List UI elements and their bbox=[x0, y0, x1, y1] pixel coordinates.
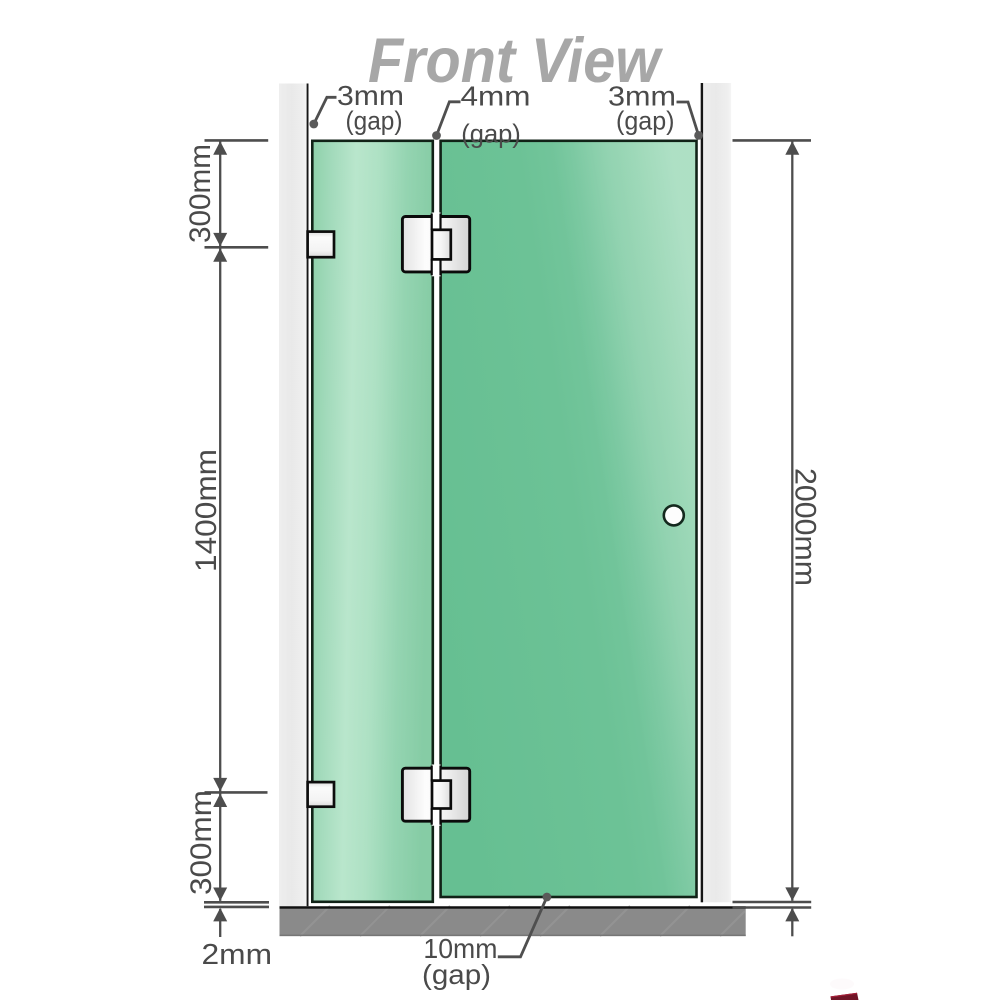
svg-text:(gap): (gap) bbox=[616, 106, 675, 136]
svg-text:300mm: 300mm bbox=[184, 144, 217, 243]
svg-text:2000mm: 2000mm bbox=[789, 468, 822, 586]
svg-text:4mm: 4mm bbox=[461, 81, 531, 112]
svg-text:300mm: 300mm bbox=[185, 790, 218, 895]
svg-text:1400mm: 1400mm bbox=[190, 449, 223, 572]
svg-text:2mm: 2mm bbox=[202, 939, 273, 971]
svg-text:(gap): (gap) bbox=[422, 959, 491, 990]
svg-text:(gap): (gap) bbox=[461, 119, 521, 149]
svg-text:(gap): (gap) bbox=[346, 106, 403, 136]
